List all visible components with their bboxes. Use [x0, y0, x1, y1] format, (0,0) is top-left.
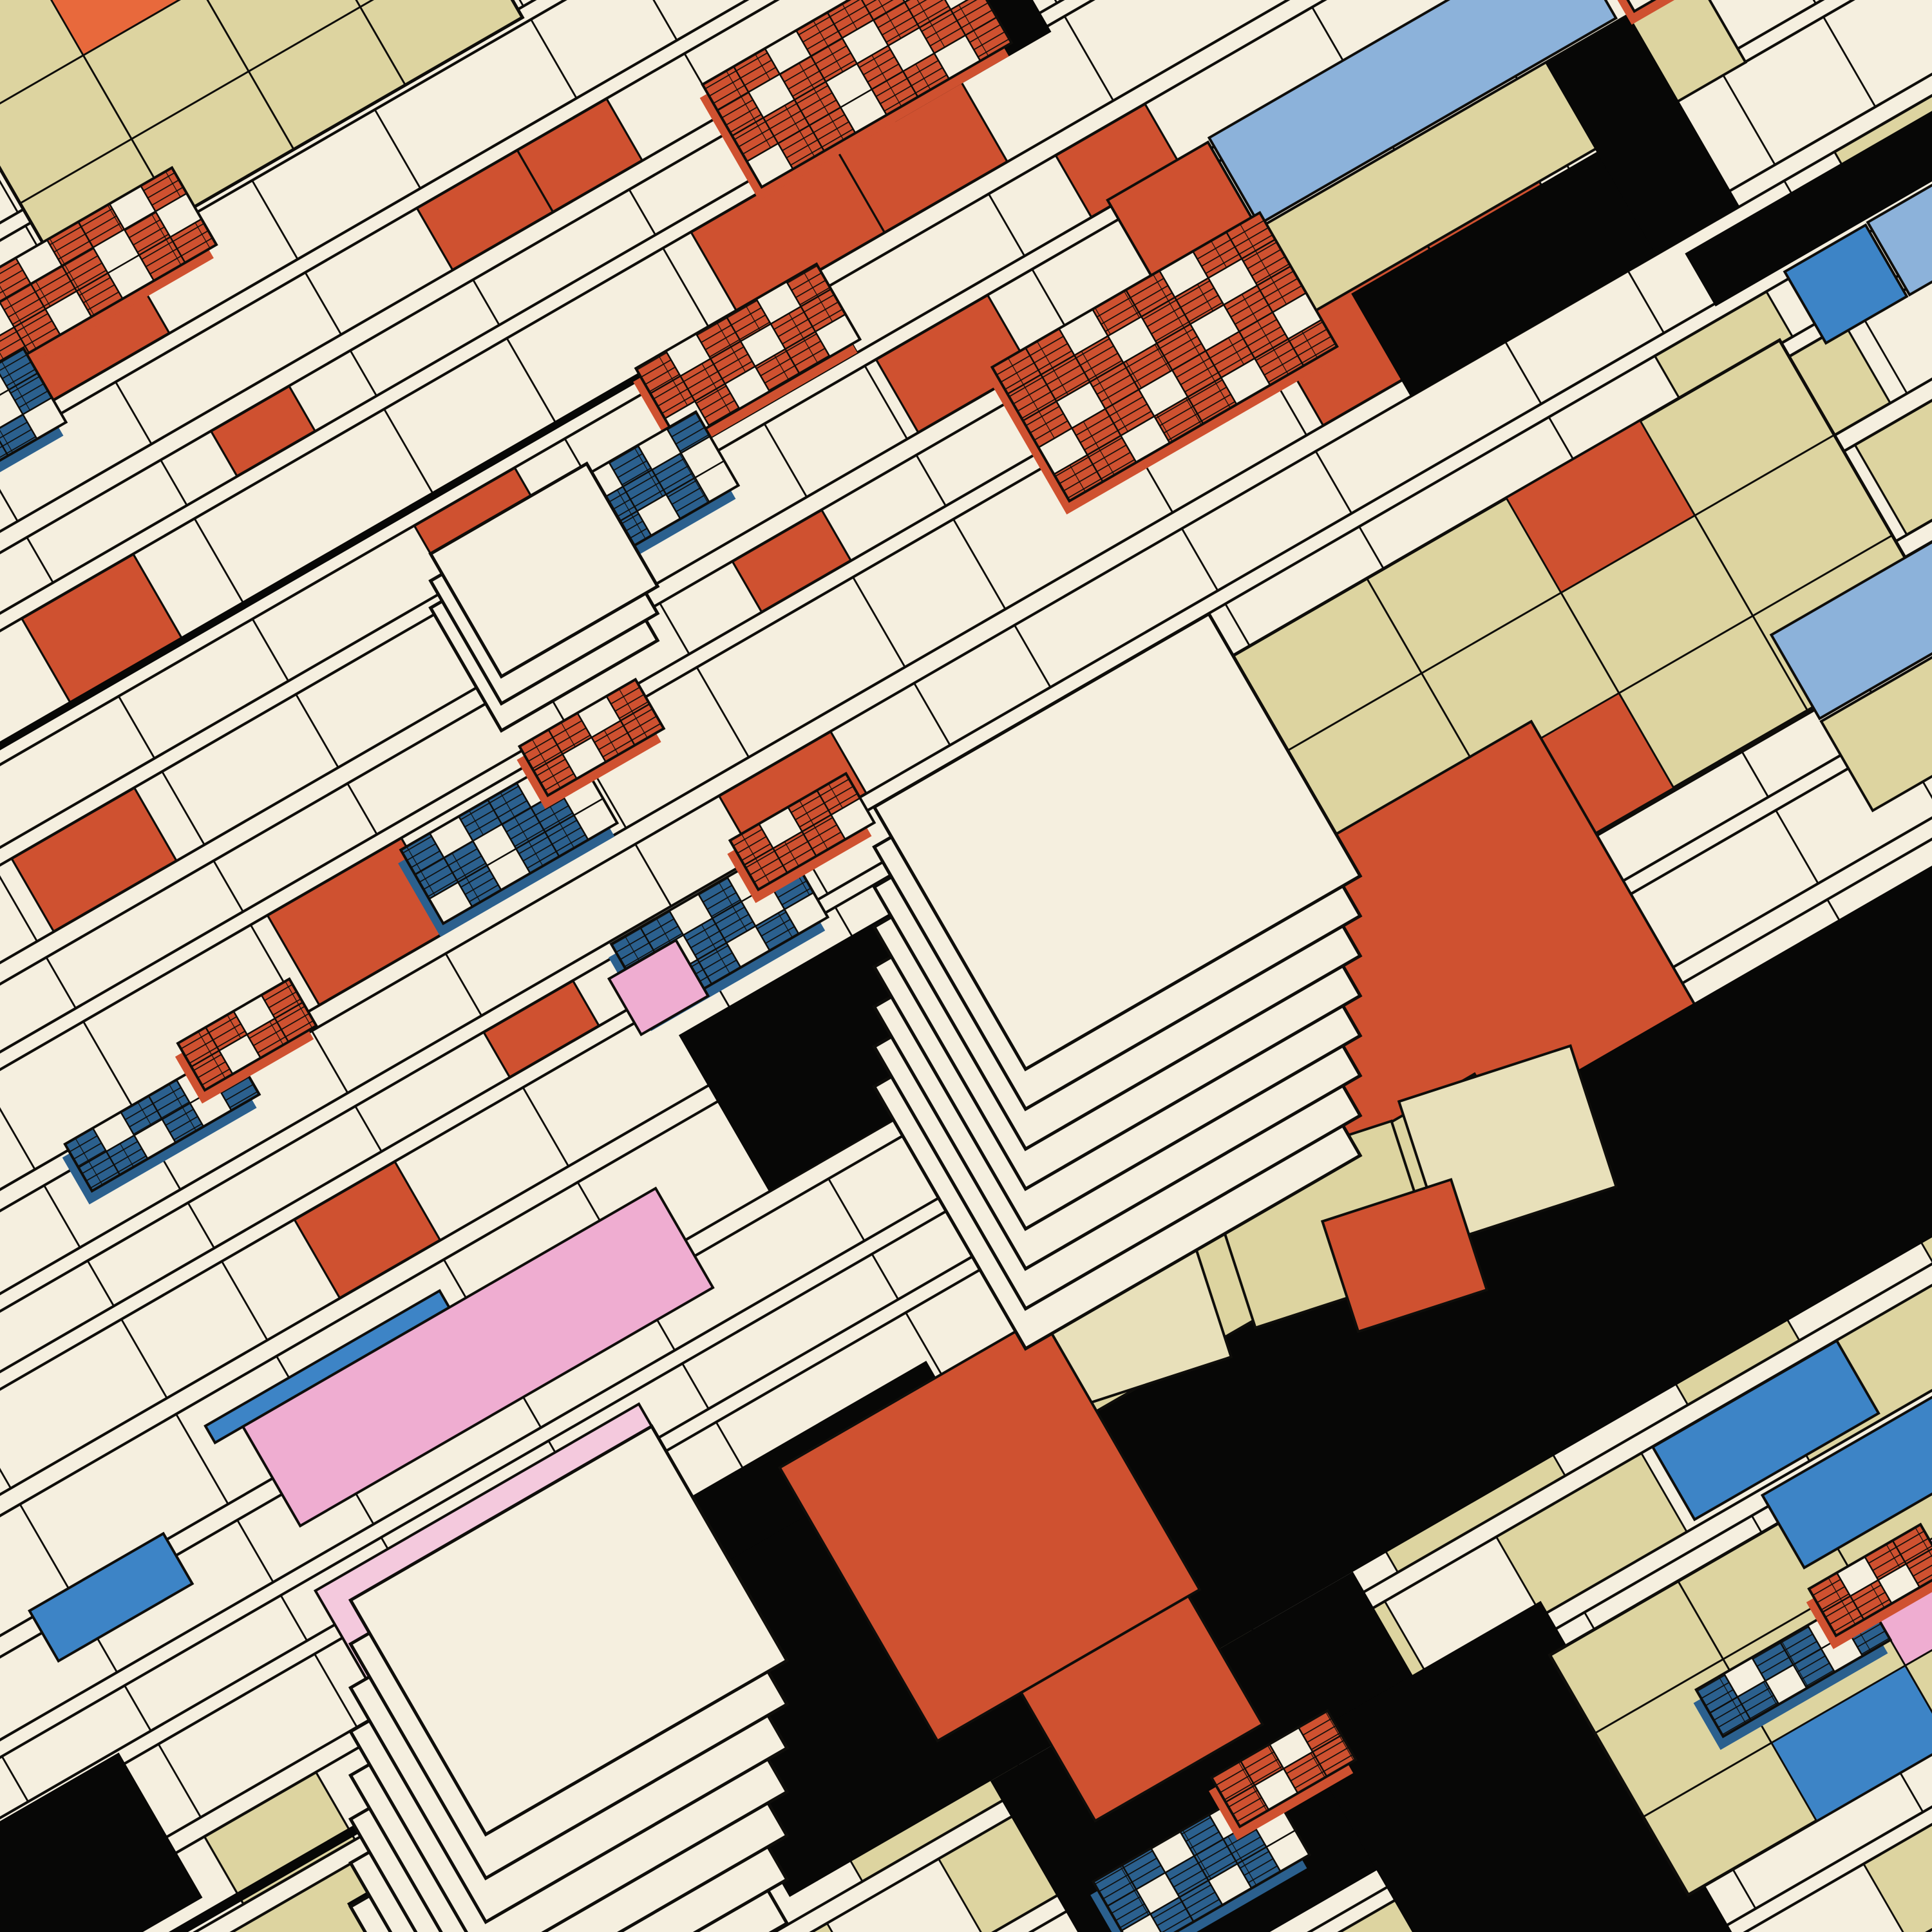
artwork-canvas — [0, 0, 1932, 1932]
generative-artwork — [0, 0, 1932, 1932]
